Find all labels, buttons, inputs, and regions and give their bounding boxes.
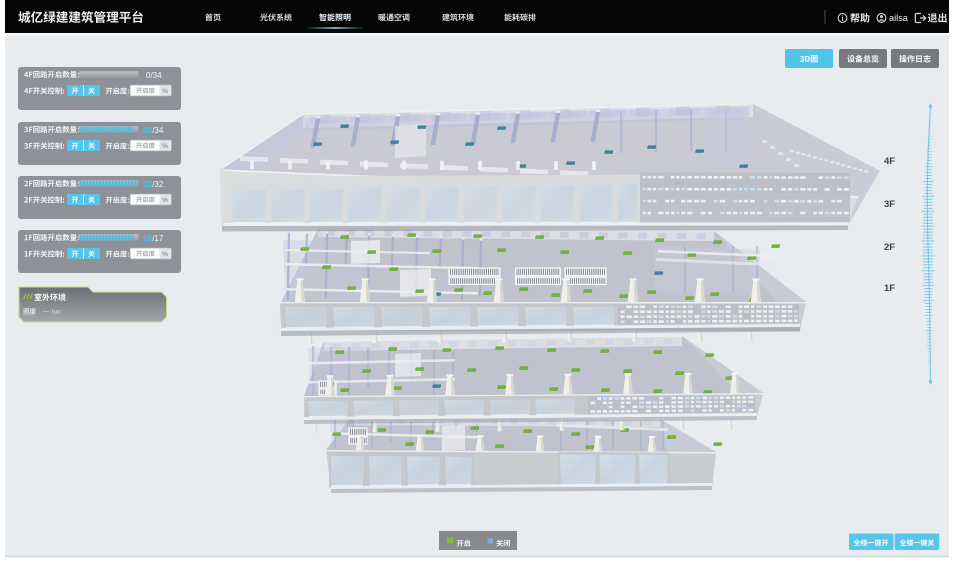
svg-text:2F: 2F <box>884 242 895 253</box>
svg-text:lux: lux <box>52 309 61 316</box>
svg-text:/17: /17 <box>152 234 164 243</box>
svg-text:%: % <box>162 251 168 258</box>
svg-text:ailsa: ailsa <box>889 13 909 23</box>
svg-text:%: % <box>162 197 168 204</box>
svg-text:1F: 1F <box>884 283 895 294</box>
svg-text:0/34: 0/34 <box>146 71 162 80</box>
svg-text:3F: 3F <box>884 199 895 210</box>
svg-text:/34: /34 <box>152 126 164 135</box>
svg-text:—: — <box>43 308 50 315</box>
svg-text:32: 32 <box>143 180 152 189</box>
svg-text:%: % <box>162 143 168 150</box>
svg-text:%: % <box>162 88 168 95</box>
svg-text:16: 16 <box>143 234 152 243</box>
svg-text:32: 32 <box>143 126 152 135</box>
svg-text:i: i <box>842 16 844 23</box>
svg-text:/32: /32 <box>152 180 164 189</box>
svg-text:4F: 4F <box>884 156 895 167</box>
